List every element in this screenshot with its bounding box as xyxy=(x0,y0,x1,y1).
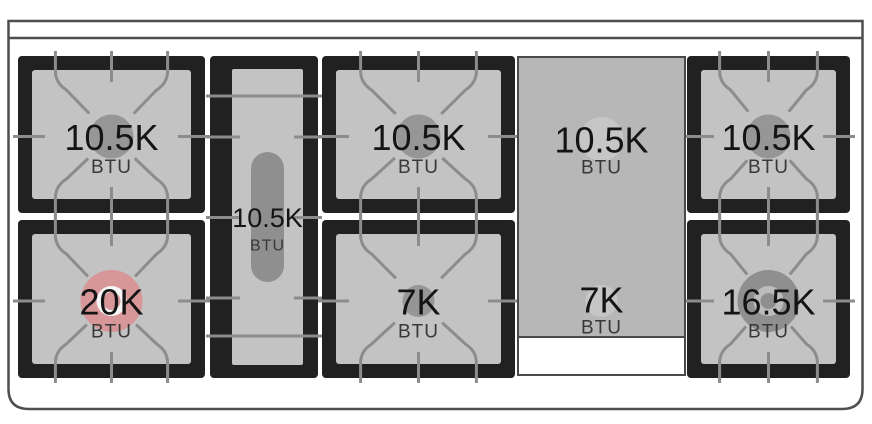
cooktop-diagram: 10.5KBTU20KBTU10.5KBTU7KBTU10.5KBTU16.5K… xyxy=(0,0,872,424)
burner-btu-unit: BTU xyxy=(581,318,622,339)
burner-btu-unit: BTU xyxy=(748,157,789,178)
burner-btu-unit: BTU xyxy=(748,322,789,343)
burner-btu-value: 10.5K xyxy=(64,117,158,158)
burner-btu-unit: BTU xyxy=(250,238,285,255)
cooktop-svg: 10.5KBTU20KBTU10.5KBTU7KBTU10.5KBTU16.5K… xyxy=(0,0,872,424)
burner-btu-unit: BTU xyxy=(398,322,439,343)
burner-btu-value: 7K xyxy=(579,280,623,321)
burner-front-right: 16.5KBTU xyxy=(682,215,855,383)
burner-btu-unit: BTU xyxy=(91,157,132,178)
griddle-tray xyxy=(518,337,685,375)
burner-btu-unit: BTU xyxy=(398,157,439,178)
burner-front-left: 20KBTU xyxy=(13,215,210,383)
burner-btu-value: 10.5K xyxy=(554,120,648,161)
burner-back-center: 10.5KBTU xyxy=(317,51,520,218)
burner-btu-value: 20K xyxy=(79,282,143,323)
griddle-section: 10.5KBTU7KBTU xyxy=(518,57,685,375)
burner-center-oval: 10.5KBTU xyxy=(206,56,322,378)
burner-btu-value: 10.5K xyxy=(371,117,465,158)
burner-back-left: 10.5KBTU xyxy=(13,51,210,218)
burner-btu-value: 7K xyxy=(396,282,440,323)
burner-btu-unit: BTU xyxy=(581,158,622,179)
burner-back-right: 10.5KBTU xyxy=(682,51,855,218)
burner-front-center: 7KBTU xyxy=(317,215,520,383)
burner-btu-value: 10.5K xyxy=(721,117,815,158)
burner-btu-value: 10.5K xyxy=(232,203,303,233)
burner-btu-unit: BTU xyxy=(91,322,132,343)
burner-btu-value: 16.5K xyxy=(721,282,815,323)
